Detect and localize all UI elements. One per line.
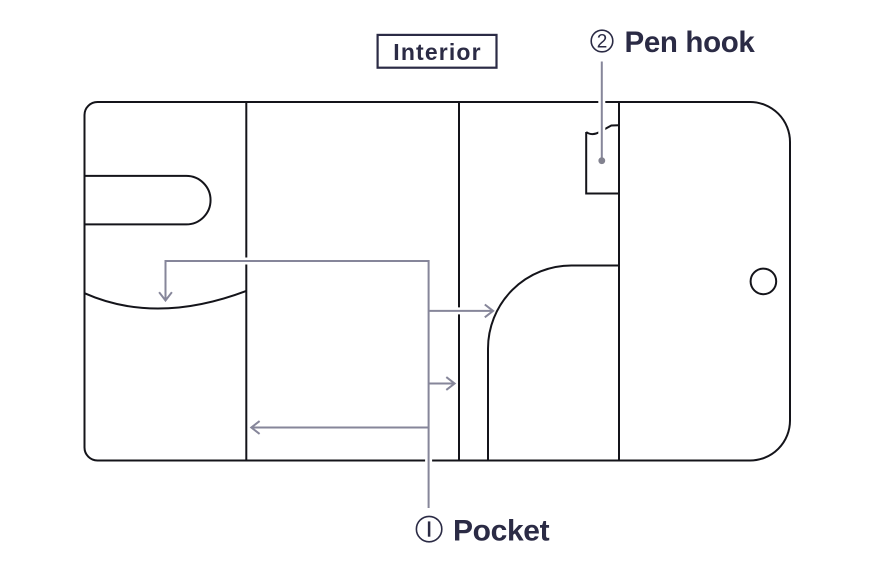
- svg-text:Pocket: Pocket: [453, 515, 550, 548]
- svg-text:Interior: Interior: [393, 39, 481, 65]
- svg-text:Pen hook: Pen hook: [625, 26, 756, 59]
- svg-text:2: 2: [597, 32, 608, 53]
